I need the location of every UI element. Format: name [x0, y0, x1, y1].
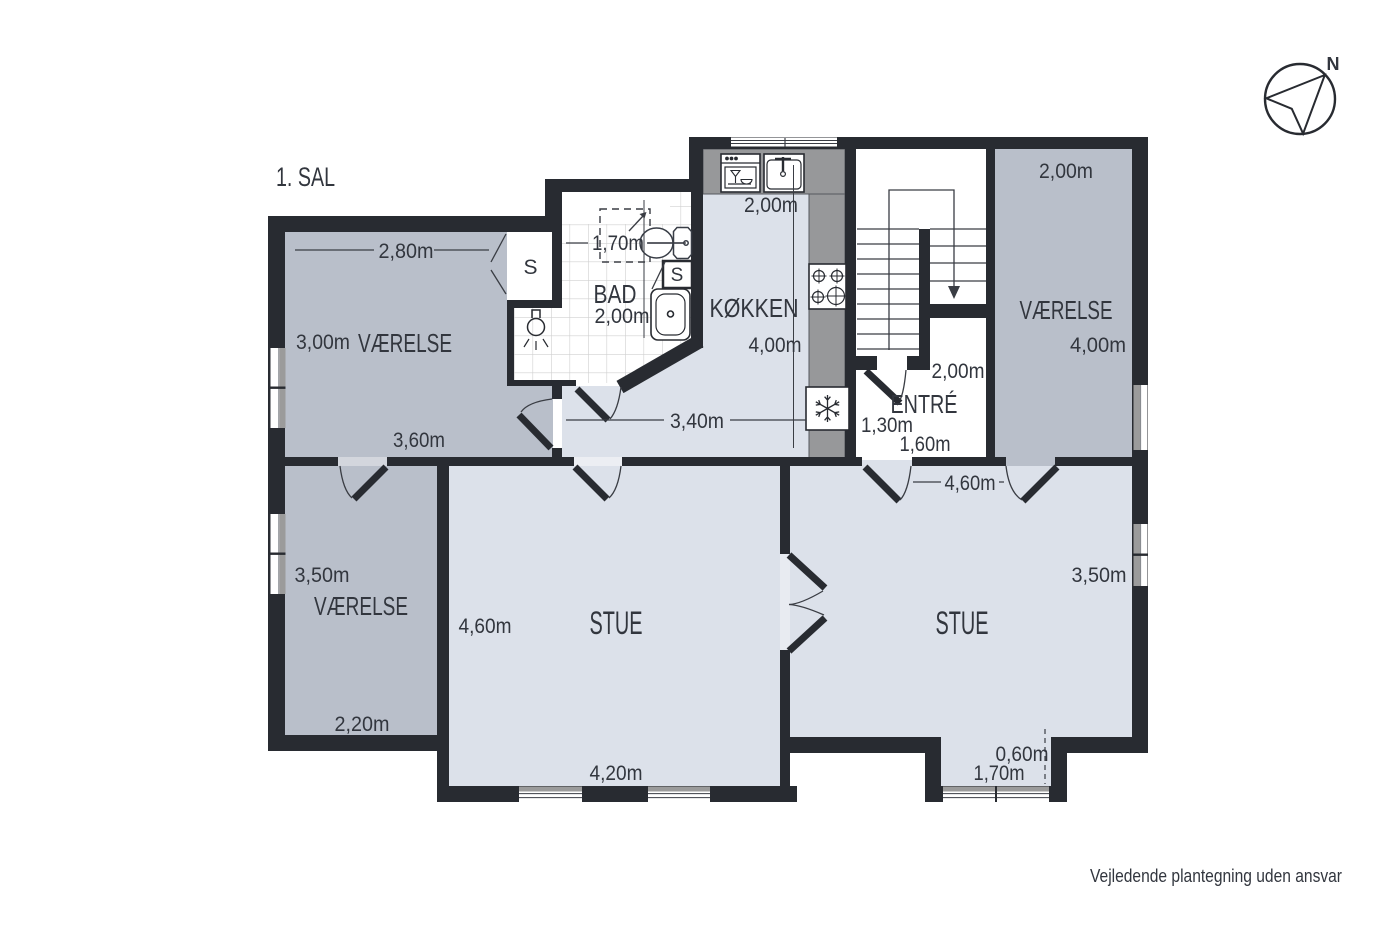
svg-text:S: S [523, 256, 537, 279]
svg-text:2,00m: 2,00m [932, 359, 985, 383]
svg-text:3,50m: 3,50m [1072, 563, 1127, 587]
svg-text:4,00m: 4,00m [1070, 333, 1126, 357]
svg-text:3,40m: 3,40m [670, 409, 724, 433]
svg-text:S: S [671, 265, 684, 286]
svg-text:2,20m: 2,20m [335, 712, 390, 736]
svg-text:VÆRELSE: VÆRELSE [314, 591, 408, 621]
svg-text:VÆRELSE: VÆRELSE [358, 328, 452, 358]
svg-text:3,60m: 3,60m [393, 428, 445, 452]
svg-text:2,00m: 2,00m [1039, 159, 1093, 183]
svg-text:2,80m: 2,80m [379, 239, 434, 263]
svg-text:4,00m: 4,00m [749, 333, 802, 357]
svg-text:STUE: STUE [590, 605, 643, 641]
svg-text:2,00m: 2,00m [744, 193, 798, 217]
svg-text:1,60m: 1,60m [900, 432, 951, 456]
svg-text:Vejledende plantegning uden an: Vejledende plantegning uden ansvar [1090, 865, 1342, 886]
svg-text:3,00m: 3,00m [296, 330, 350, 354]
svg-text:4,20m: 4,20m [590, 761, 643, 785]
svg-text:STUE: STUE [936, 605, 989, 641]
svg-text:4,60m: 4,60m [459, 614, 512, 638]
svg-text:4,60m: 4,60m [945, 471, 996, 495]
svg-text:1. SAL: 1. SAL [276, 162, 335, 192]
svg-text:VÆRELSE: VÆRELSE [1020, 295, 1113, 325]
svg-text:3,50m: 3,50m [295, 563, 350, 587]
svg-text:KØKKEN: KØKKEN [710, 293, 799, 323]
svg-text:1,70m: 1,70m [974, 761, 1025, 785]
svg-text:N: N [1327, 54, 1340, 74]
svg-text:2,00m: 2,00m [595, 304, 650, 328]
svg-text:1,70m: 1,70m [592, 231, 644, 255]
